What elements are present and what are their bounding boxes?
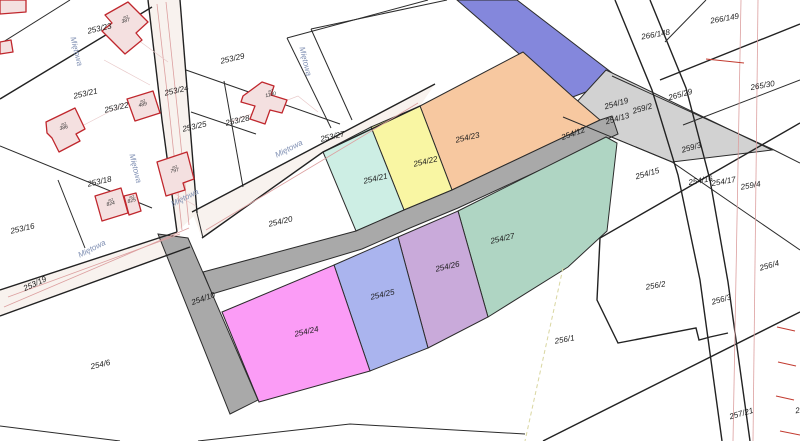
building-fragment — [0, 0, 26, 14]
map-canvas[interactable]: 253/23253/29253/21253/24253/22253/25253/… — [0, 0, 800, 441]
building-fragment — [0, 40, 13, 54]
cadastral-map[interactable]: 253/23253/29253/21253/24253/22253/25253/… — [0, 0, 800, 441]
